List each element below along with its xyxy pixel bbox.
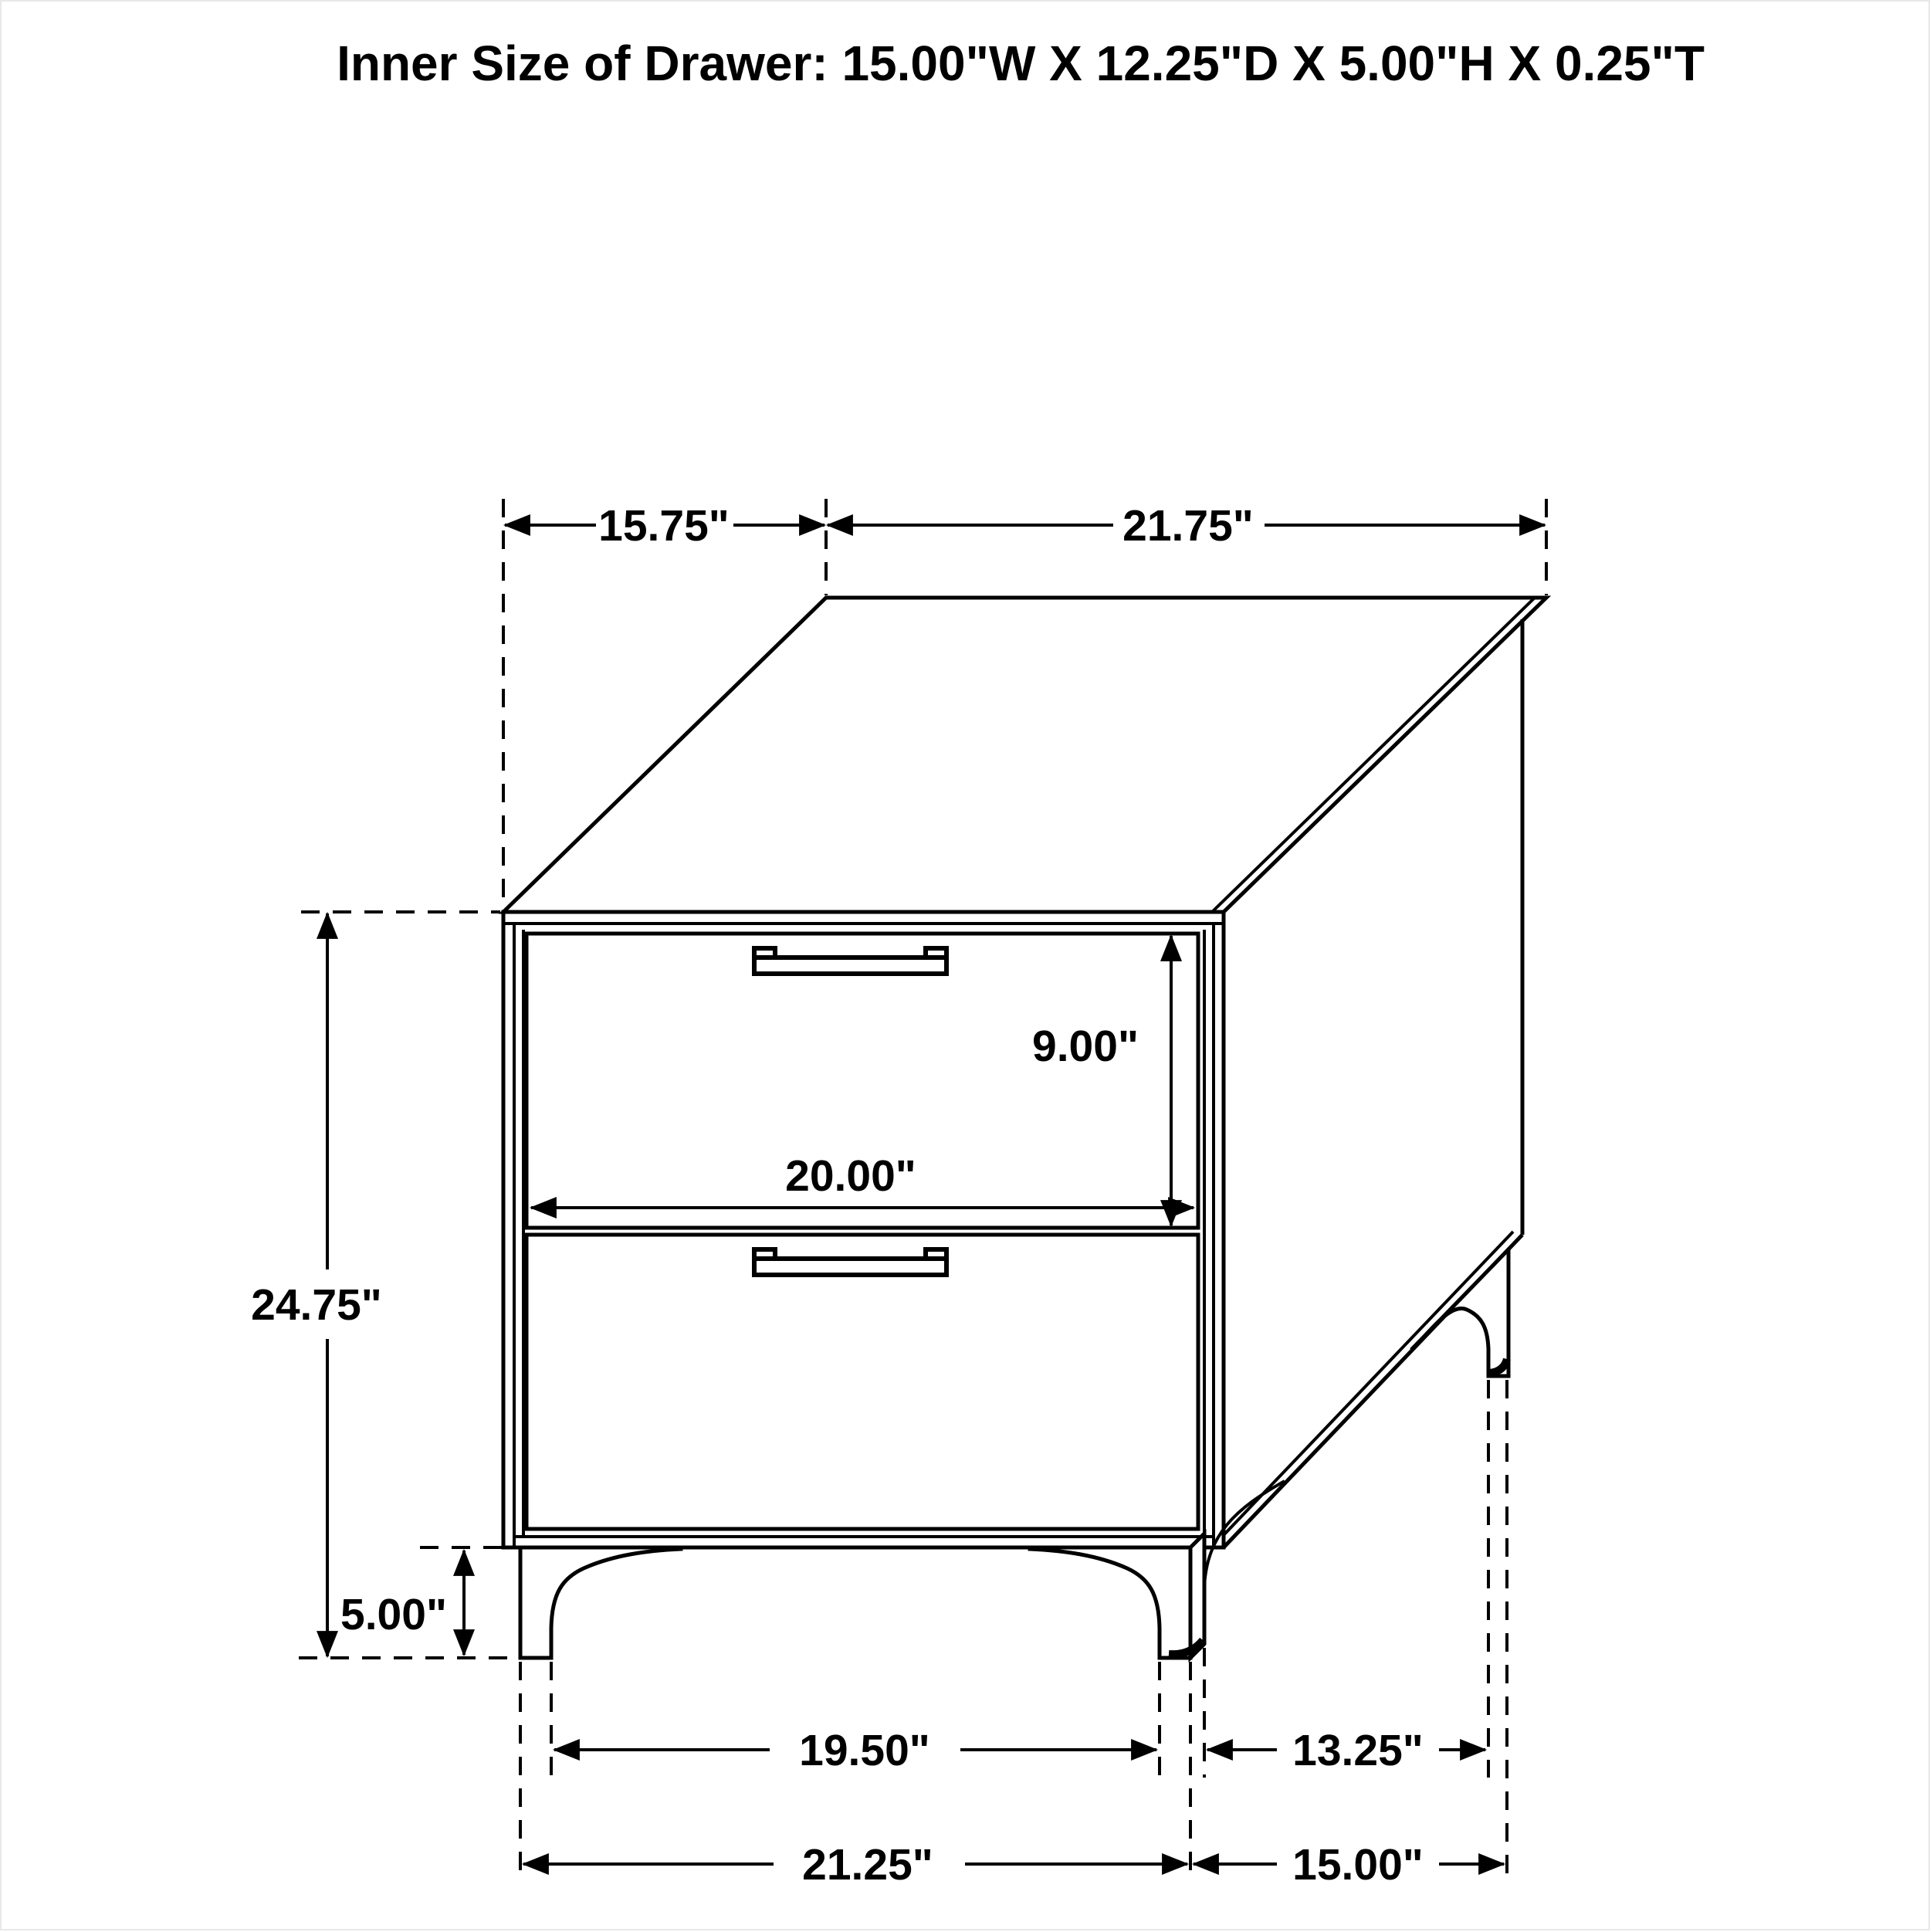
label-drawer-height: 9.00" (1032, 1022, 1139, 1071)
front-left-leg (520, 1547, 681, 1658)
label-front-legs-outer: 21.25" (802, 1840, 933, 1890)
label-top-depth: 15.75" (598, 501, 730, 551)
label-overall-height: 24.75" (251, 1280, 382, 1330)
handle-bar (754, 958, 946, 974)
label-front-legs-inner: 19.50" (799, 1726, 930, 1775)
label-drawer-width: 20.00" (785, 1151, 916, 1201)
diagram-canvas: Inner Size of Drawer: 15.00"W X 12.25"D … (2, 2, 1930, 1932)
label-top-width: 21.75" (1122, 501, 1254, 551)
side-bottom-panel-line (1224, 1232, 1513, 1535)
label-legs-depth-inner: 13.25" (1292, 1726, 1424, 1775)
diagram-title: Inner Size of Drawer: 15.00"W X 12.25"D … (337, 36, 1705, 91)
top-face (503, 598, 1546, 912)
front-right-leg-side (1190, 1534, 1204, 1658)
rear-right-leg (1411, 1249, 1508, 1376)
front-face (503, 912, 1224, 1547)
nightstand-drawing (503, 598, 1546, 1658)
handle-bar (754, 1259, 946, 1275)
label-leg-height: 5.00" (340, 1590, 447, 1639)
furniture-dimension-diagram: Inner Size of Drawer: 15.00"W X 12.25"D … (0, 0, 1930, 1930)
front-right-leg (1030, 1547, 1190, 1658)
label-legs-depth-outer: 15.00" (1292, 1840, 1424, 1890)
